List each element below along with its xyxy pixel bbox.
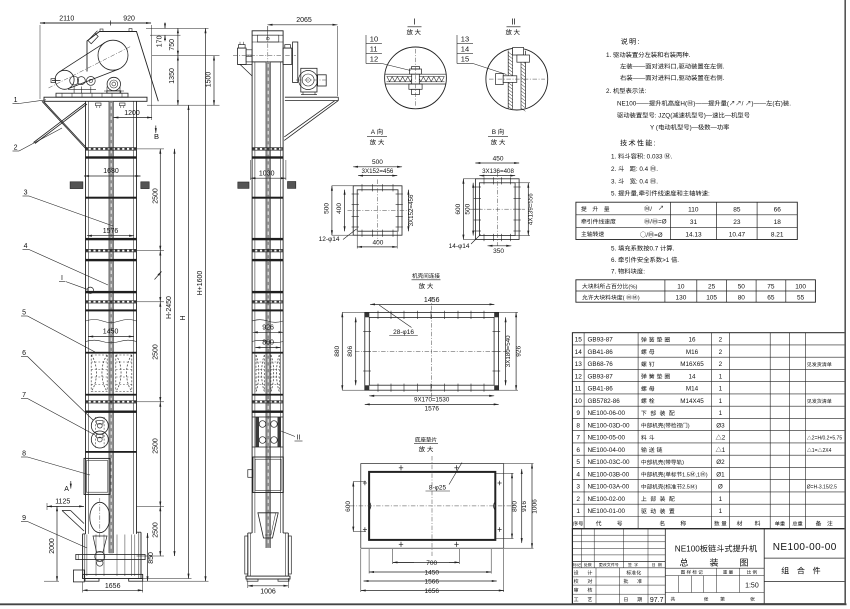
svg-text:25: 25: [708, 284, 716, 291]
svg-text:NE100-00-00: NE100-00-00: [773, 542, 837, 553]
svg-text:.: .: [723, 75, 725, 82]
svg-text:NE100-03C-00: NE100-03C-00: [588, 459, 631, 466]
svg-text:100: 100: [795, 284, 806, 291]
svg-text:926: 926: [262, 325, 274, 332]
svg-text:5.: 5.: [611, 246, 617, 253]
svg-text:1656: 1656: [425, 588, 440, 595]
svg-text:1125: 1125: [55, 499, 70, 506]
svg-text:NE100-03A-00: NE100-03A-00: [588, 484, 630, 491]
svg-text:2: 2: [719, 361, 723, 368]
svg-text:15: 15: [461, 55, 469, 64]
svg-text:2000: 2000: [49, 538, 56, 554]
svg-text:M14: M14: [686, 386, 699, 393]
svg-text:Ø3: Ø3: [716, 422, 725, 429]
svg-text:1: 1: [719, 508, 723, 515]
svg-text:1450: 1450: [425, 569, 440, 576]
svg-text:8: 8: [576, 422, 580, 429]
svg-text:1: 1: [719, 373, 723, 380]
svg-text:1350: 1350: [169, 68, 176, 84]
svg-text:2065: 2065: [296, 17, 312, 24]
svg-text:2.: 2.: [611, 166, 617, 173]
svg-text:806: 806: [347, 345, 354, 356]
svg-text:1030: 1030: [259, 170, 275, 177]
svg-text:.: .: [656, 166, 658, 173]
svg-text:6.: 6.: [611, 257, 617, 264]
svg-text:A: A: [371, 129, 376, 136]
svg-text:H+1600: H+1600: [197, 271, 204, 296]
svg-text:2: 2: [14, 145, 18, 152]
svg-text:14.13: 14.13: [685, 231, 702, 238]
svg-text:400: 400: [336, 203, 343, 214]
svg-text:3X180=540: 3X180=540: [505, 335, 512, 367]
svg-text:2X4: 2X4: [823, 448, 832, 454]
svg-text:14: 14: [461, 45, 469, 54]
svg-text:2.: 2.: [606, 88, 612, 95]
svg-text:600: 600: [455, 203, 462, 214]
svg-text:Ø1: Ø1: [716, 471, 725, 478]
svg-text:75: 75: [767, 284, 775, 291]
svg-text:I: I: [413, 18, 415, 27]
svg-text:NE100-05-00: NE100-05-00: [588, 435, 626, 442]
svg-text:)—: )—: [690, 125, 699, 132]
svg-text:800: 800: [511, 501, 518, 512]
svg-text:110: 110: [688, 206, 699, 213]
svg-text:55: 55: [797, 295, 805, 302]
svg-text::: :: [637, 37, 640, 46]
svg-text:1450: 1450: [103, 329, 119, 336]
svg-text:): ): [781, 101, 783, 108]
svg-text:)——: )——: [693, 101, 708, 108]
svg-text:7.: 7.: [611, 269, 617, 276]
svg-text:(: (: [663, 485, 665, 491]
svg-text:3: 3: [24, 190, 28, 197]
svg-text:(: (: [663, 423, 665, 429]
svg-text:2: 2: [722, 435, 726, 442]
svg-text:10.47: 10.47: [729, 231, 746, 238]
svg-text:——: ——: [633, 75, 646, 82]
svg-text::: :: [645, 88, 647, 95]
svg-text:2500: 2500: [152, 522, 159, 538]
svg-text:2: 2: [719, 337, 723, 344]
svg-text:1: 1: [719, 386, 723, 393]
svg-text:(: (: [727, 101, 730, 108]
svg-text:5.: 5.: [611, 191, 617, 198]
svg-text:M16X65: M16X65: [680, 361, 704, 368]
svg-text:65: 65: [767, 295, 775, 302]
svg-text:(: (: [663, 472, 665, 478]
svg-text:/: /: [650, 206, 652, 213]
svg-text:800: 800: [262, 340, 274, 347]
svg-text:): ): [695, 485, 697, 491]
svg-text:II: II: [511, 18, 515, 27]
svg-text:880: 880: [334, 345, 341, 356]
svg-text:2110: 2110: [59, 16, 74, 23]
svg-text:1: 1: [576, 508, 580, 515]
svg-text:50: 50: [738, 284, 746, 291]
svg-text:NE100-03D-00: NE100-03D-00: [588, 422, 631, 429]
svg-text:.: .: [671, 154, 673, 161]
svg-text:——: ——: [633, 64, 646, 71]
svg-text:3X152=456: 3X152=456: [362, 168, 394, 175]
svg-text:10: 10: [370, 35, 378, 44]
svg-text:14: 14: [575, 349, 583, 356]
svg-text:.: .: [673, 246, 675, 253]
svg-text:926: 926: [516, 345, 523, 356]
svg-text:1.: 1.: [606, 52, 612, 59]
svg-text:Ø=H-3.15/2.5: Ø=H-3.15/2.5: [807, 485, 837, 491]
svg-text:): ): [682, 460, 684, 466]
svg-text:5: 5: [22, 310, 26, 317]
svg-text:2: 2: [576, 496, 580, 503]
svg-text:700: 700: [426, 560, 437, 567]
svg-text:1200: 1200: [124, 110, 140, 117]
svg-text:750: 750: [169, 39, 176, 51]
svg-text:1566: 1566: [425, 578, 440, 585]
svg-text:: 0.4: : 0.4: [636, 166, 649, 173]
svg-text:6: 6: [22, 350, 26, 357]
svg-text:15: 15: [575, 337, 583, 344]
svg-text:NE100-04-00: NE100-04-00: [588, 447, 626, 454]
svg-text:6: 6: [576, 447, 580, 454]
svg-text:: 0.033: : 0.033: [643, 154, 663, 161]
svg-text:B: B: [154, 132, 159, 141]
svg-text:11: 11: [370, 45, 378, 54]
svg-text:400: 400: [373, 239, 384, 246]
svg-text:1=: 1=: [812, 448, 818, 454]
svg-text:130: 130: [676, 295, 687, 302]
svg-text:,: ,: [677, 75, 679, 82]
svg-text:18: 18: [774, 219, 782, 226]
svg-text:(%): (%): [628, 284, 637, 290]
svg-text:)—: )—: [704, 113, 713, 120]
svg-text:1576: 1576: [425, 405, 440, 412]
svg-text:,1: ,1: [695, 472, 700, 478]
svg-text:3X136=408: 3X136=408: [482, 168, 514, 175]
svg-text:A: A: [64, 486, 69, 493]
svg-text:3X152=456: 3X152=456: [408, 194, 415, 226]
svg-text:14: 14: [689, 373, 697, 380]
svg-text:I: I: [61, 275, 63, 282]
svg-text:14-φ14: 14-φ14: [449, 243, 470, 250]
svg-text:.: .: [723, 64, 725, 71]
svg-text:/: /: [646, 232, 648, 239]
svg-text:H: H: [180, 315, 187, 320]
svg-text:4X139=556: 4X139=556: [528, 193, 535, 225]
svg-text:28-φ16: 28-φ16: [393, 329, 414, 336]
svg-text:500: 500: [372, 159, 383, 166]
svg-text:4: 4: [576, 471, 580, 478]
svg-text:>1: >1: [662, 257, 670, 264]
svg-text:): ): [638, 296, 640, 302]
svg-text:23: 23: [733, 219, 741, 226]
svg-text:M14X45: M14X45: [680, 398, 704, 405]
svg-text:450: 450: [493, 155, 504, 162]
svg-text:=Ø: =Ø: [658, 219, 667, 226]
svg-text:916: 916: [521, 501, 528, 512]
svg-text:NE100——: NE100——: [617, 101, 650, 108]
svg-text:16: 16: [689, 337, 697, 344]
svg-text:5: 5: [576, 459, 580, 466]
svg-text:1006: 1006: [531, 499, 538, 514]
svg-text:9X170=1530: 9X170=1530: [414, 396, 450, 403]
svg-text:3.: 3.: [611, 179, 617, 186]
svg-text:2500: 2500: [152, 188, 159, 204]
svg-text:.: .: [689, 52, 691, 59]
svg-text:1: 1: [719, 410, 723, 417]
svg-text:12-φ14: 12-φ14: [319, 236, 340, 243]
svg-text:: JZQ(: : JZQ(: [655, 113, 673, 120]
svg-text:1: 1: [722, 447, 726, 454]
svg-text:H-2450: H-2450: [166, 296, 173, 319]
svg-text:2500: 2500: [152, 438, 159, 454]
svg-text:12: 12: [575, 373, 583, 380]
svg-text:8.21: 8.21: [771, 231, 784, 238]
svg-text:1656: 1656: [105, 583, 121, 590]
svg-text:1: 1: [14, 97, 18, 104]
svg-text:85: 85: [733, 206, 741, 213]
svg-text:350: 350: [493, 248, 504, 255]
svg-text:1576: 1576: [103, 228, 119, 235]
svg-text:B: B: [492, 129, 496, 136]
svg-text:Y (: Y (: [650, 125, 659, 132]
svg-text:2=H/0.2+5.75: 2=H/0.2+5.75: [812, 436, 843, 442]
svg-text:NE100-02-00: NE100-02-00: [588, 496, 626, 503]
svg-text:1500: 1500: [205, 72, 212, 88]
svg-text:10: 10: [575, 398, 583, 405]
svg-text:1680: 1680: [103, 168, 119, 175]
svg-text:.: .: [789, 101, 791, 108]
svg-text:4: 4: [24, 243, 28, 250]
svg-text:): ): [706, 472, 708, 478]
svg-text:2500: 2500: [152, 344, 159, 360]
svg-text:500: 500: [323, 203, 330, 214]
svg-text:13: 13: [461, 35, 469, 44]
svg-text:GB41-86: GB41-86: [588, 349, 614, 356]
svg-text:2: 2: [719, 349, 723, 356]
svg-text:66: 66: [774, 206, 782, 213]
svg-text:/: /: [742, 101, 744, 108]
svg-text:9: 9: [22, 515, 26, 522]
svg-text:3: 3: [576, 484, 580, 491]
svg-text:170: 170: [157, 35, 164, 47]
svg-text:II: II: [297, 435, 301, 442]
svg-text:1006: 1006: [260, 588, 276, 595]
svg-text::: :: [643, 269, 645, 276]
svg-text:0.7: 0.7: [650, 246, 659, 253]
svg-text:=Ø: =Ø: [654, 232, 663, 239]
svg-text:Ø: Ø: [718, 484, 723, 491]
svg-text:GB5782-86: GB5782-86: [588, 398, 621, 405]
svg-text:.: .: [656, 179, 658, 186]
svg-text:,: ,: [637, 191, 639, 198]
svg-text:,: ,: [677, 64, 679, 71]
svg-text:: 0.4: : 0.4: [636, 179, 649, 186]
svg-text:—: —: [711, 125, 718, 132]
svg-text:105: 105: [706, 295, 717, 302]
svg-text:9: 9: [576, 410, 580, 417]
svg-text:97.7: 97.7: [650, 597, 664, 604]
svg-text:1: 1: [719, 496, 723, 503]
svg-text:31: 31: [690, 219, 698, 226]
svg-text:GB93-87: GB93-87: [588, 337, 614, 344]
svg-text:GB68-76: GB68-76: [588, 361, 614, 368]
svg-text:GB93-87: GB93-87: [588, 373, 614, 380]
svg-text:11: 11: [575, 386, 582, 393]
svg-text::: :: [654, 139, 657, 148]
svg-text:12: 12: [370, 55, 378, 64]
svg-text:—: —: [725, 113, 732, 120]
svg-text:NE100-06-00: NE100-06-00: [588, 410, 626, 417]
svg-text::: :: [708, 191, 710, 198]
svg-text:M16: M16: [686, 349, 699, 356]
svg-text:): ): [688, 423, 690, 429]
svg-text:8-φ25: 8-φ25: [429, 485, 447, 492]
svg-text:500: 500: [465, 203, 472, 214]
svg-text:80: 80: [738, 295, 746, 302]
svg-text:1:50: 1:50: [745, 583, 759, 590]
svg-text:8: 8: [22, 451, 26, 458]
svg-text:13: 13: [575, 361, 583, 368]
svg-text:7: 7: [22, 392, 26, 399]
svg-text:.: .: [677, 257, 679, 264]
svg-text:(: (: [623, 296, 625, 302]
svg-text:1.: 1.: [611, 154, 617, 161]
svg-text:/: /: [650, 219, 652, 226]
svg-text:10: 10: [677, 284, 685, 291]
svg-text:7: 7: [576, 435, 580, 442]
svg-text:2.5: 2.5: [682, 485, 690, 491]
svg-text:NE100-01-00: NE100-01-00: [588, 508, 626, 515]
svg-text:920: 920: [123, 16, 135, 23]
svg-text:H(: H(: [680, 101, 688, 108]
svg-text:1: 1: [719, 398, 723, 405]
svg-text:Ø2: Ø2: [716, 459, 725, 466]
svg-text:(: (: [663, 460, 665, 466]
svg-text:1.5: 1.5: [682, 472, 690, 478]
svg-text:)——: )——: [751, 101, 766, 108]
svg-text:850: 850: [148, 552, 155, 564]
svg-text:600: 600: [345, 501, 352, 512]
svg-text:GB41-86: GB41-86: [588, 386, 614, 393]
svg-text:NE100-03B-00: NE100-03B-00: [588, 471, 630, 478]
svg-text:NE100: NE100: [675, 545, 700, 554]
